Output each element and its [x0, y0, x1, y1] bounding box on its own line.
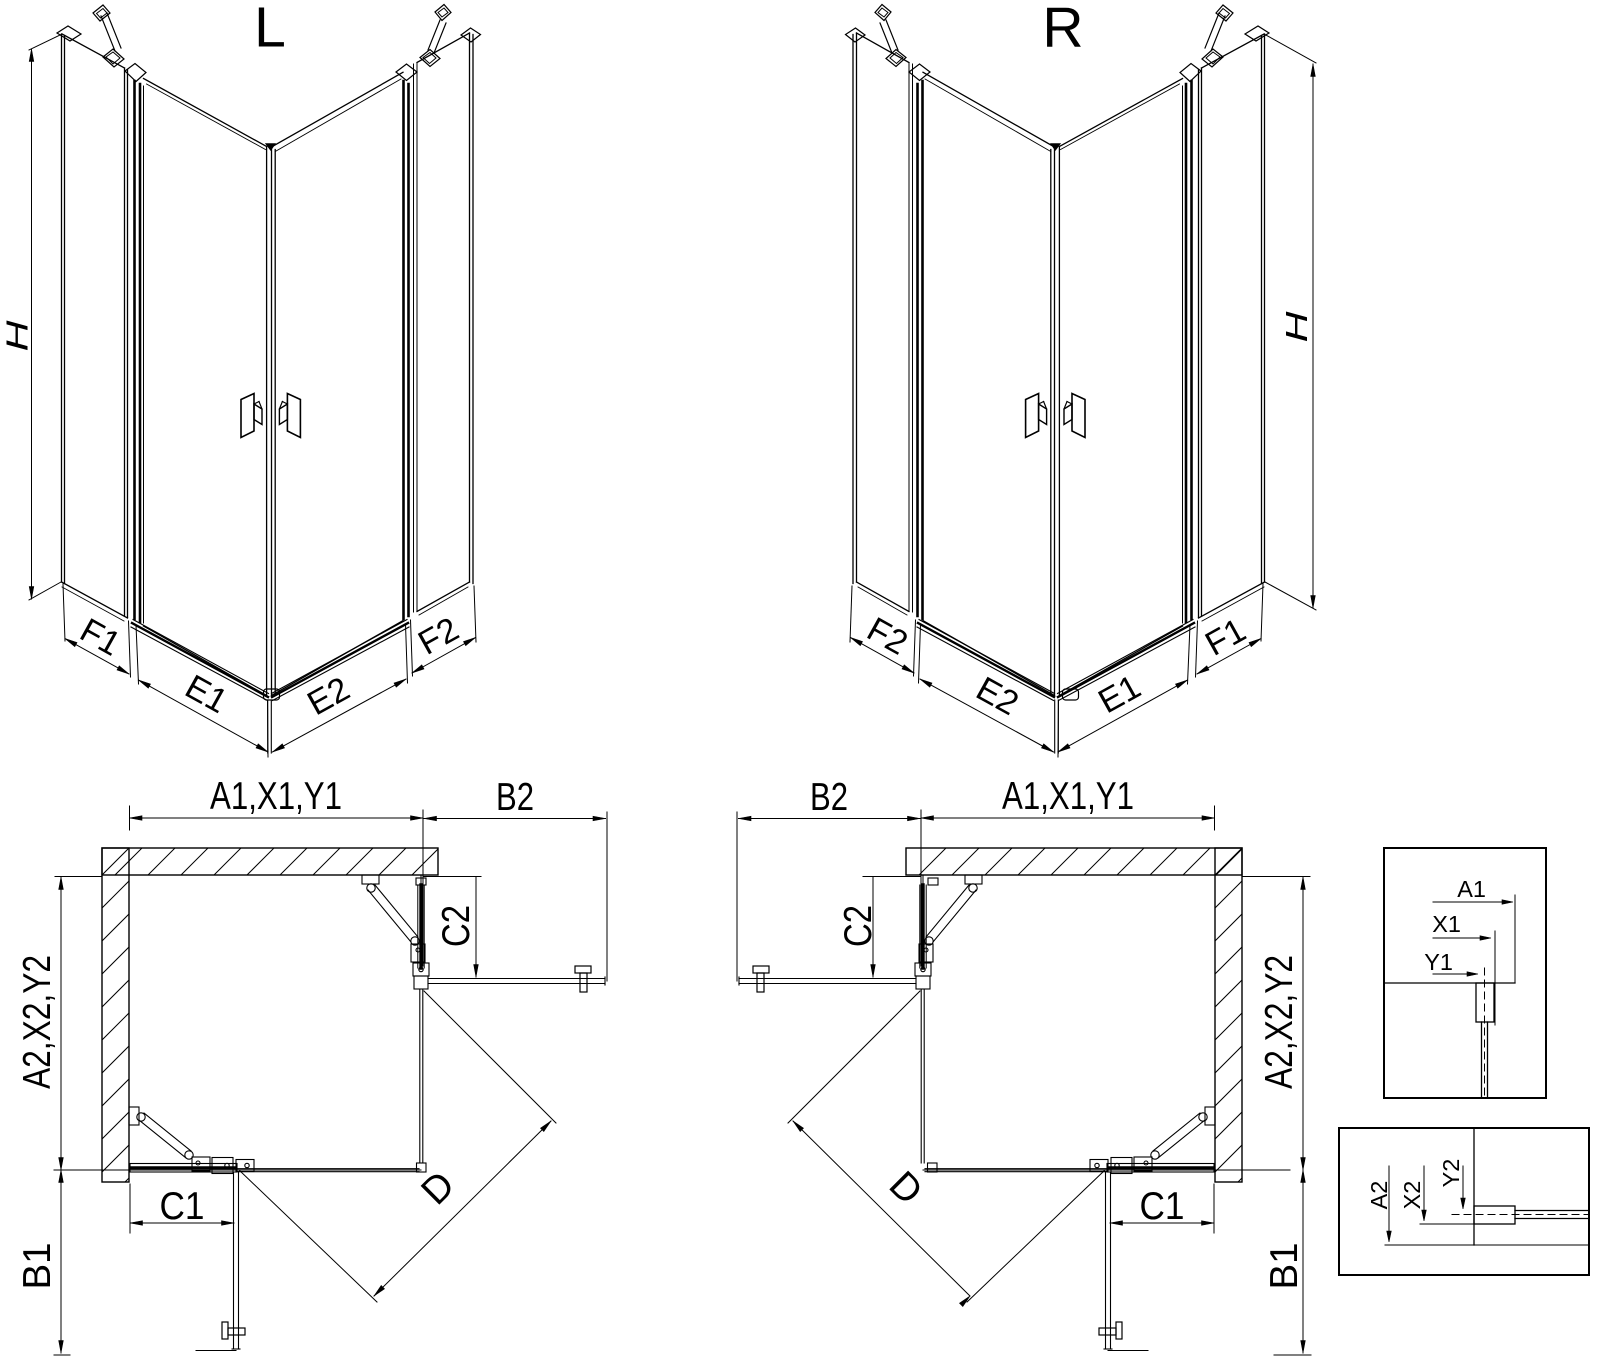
svg-text:A2,X2,Y2: A2,X2,Y2	[1258, 955, 1301, 1089]
svg-text:C2: C2	[837, 905, 880, 947]
svg-text:X2: X2	[1399, 1181, 1425, 1210]
svg-text:A2,X2,Y2: A2,X2,Y2	[16, 955, 59, 1089]
svg-text:A1: A1	[1457, 876, 1486, 902]
svg-text:C2: C2	[435, 905, 478, 947]
svg-text:Y2: Y2	[1438, 1159, 1464, 1188]
svg-text:Y1: Y1	[1424, 949, 1453, 975]
svg-text:R: R	[1042, 0, 1083, 60]
svg-text:L: L	[254, 0, 286, 60]
svg-text:B2: B2	[810, 776, 848, 819]
svg-text:C1: C1	[1140, 1185, 1185, 1228]
svg-text:B2: B2	[496, 776, 534, 819]
svg-text:H: H	[1279, 311, 1314, 343]
svg-text:A2: A2	[1366, 1181, 1392, 1210]
svg-text:A1,X1,Y1: A1,X1,Y1	[1002, 775, 1134, 818]
svg-text:X1: X1	[1432, 911, 1461, 937]
svg-text:H: H	[0, 320, 35, 352]
svg-text:A1,X1,Y1: A1,X1,Y1	[210, 775, 342, 818]
svg-text:C1: C1	[160, 1185, 205, 1228]
svg-text:B1: B1	[16, 1243, 59, 1290]
svg-text:B1: B1	[1263, 1243, 1306, 1290]
